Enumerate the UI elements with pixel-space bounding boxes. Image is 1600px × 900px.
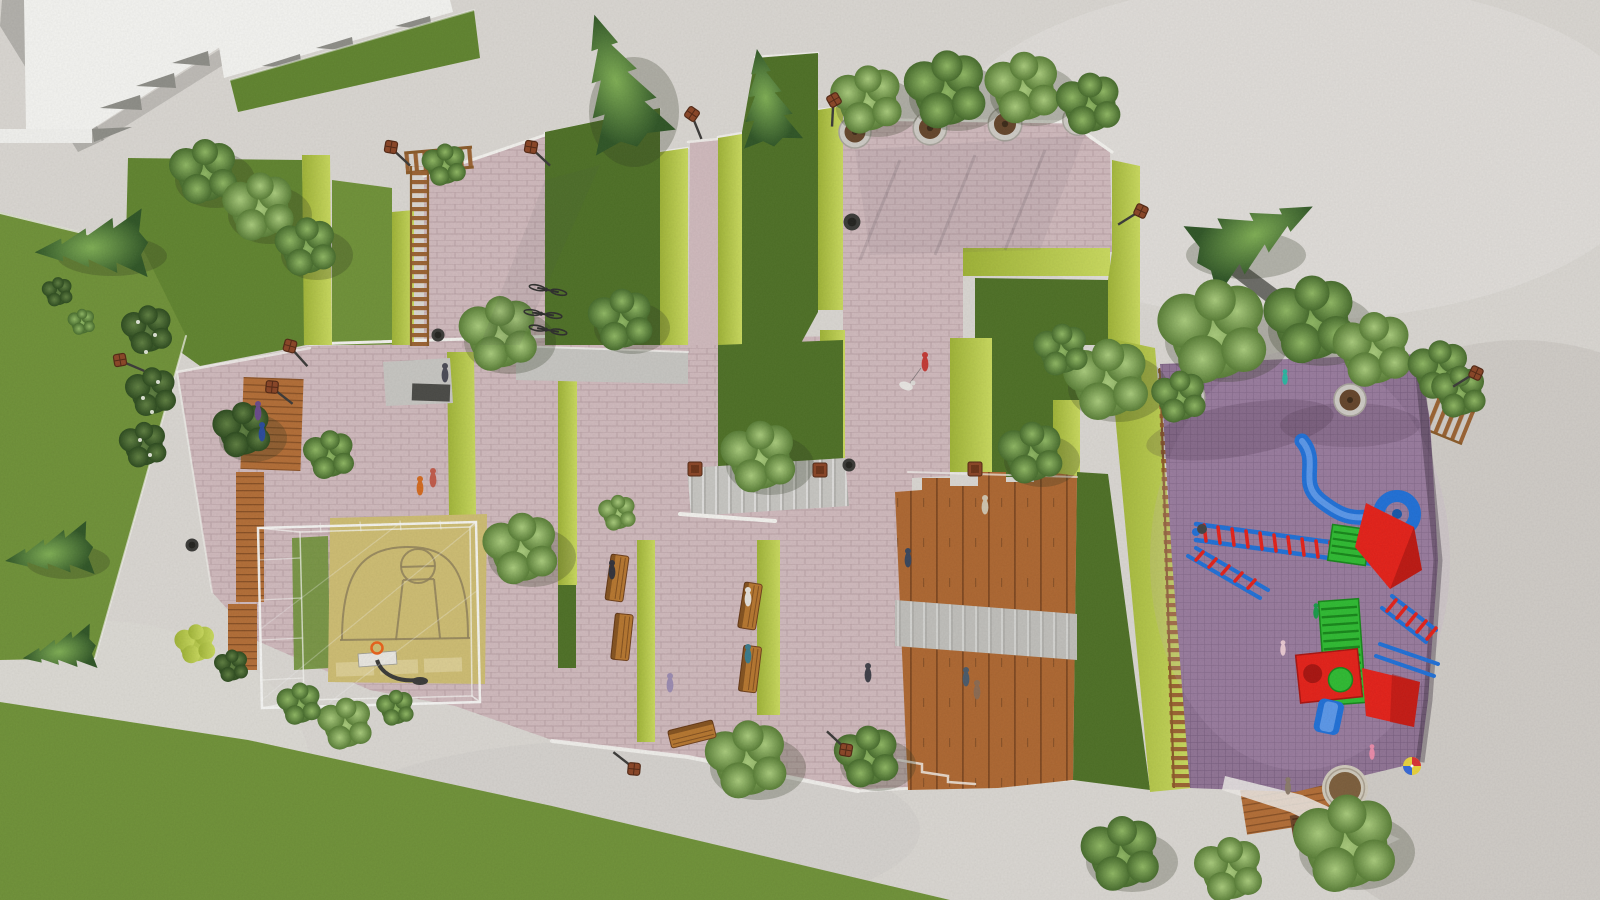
- ambience: [0, 0, 1600, 900]
- texture-overlay: [0, 0, 1600, 900]
- render-canvas: Top-down aerial 3D rendering of a landsc…: [0, 0, 1600, 900]
- park-aerial-render: Top-down aerial 3D rendering of a landsc…: [0, 0, 1600, 900]
